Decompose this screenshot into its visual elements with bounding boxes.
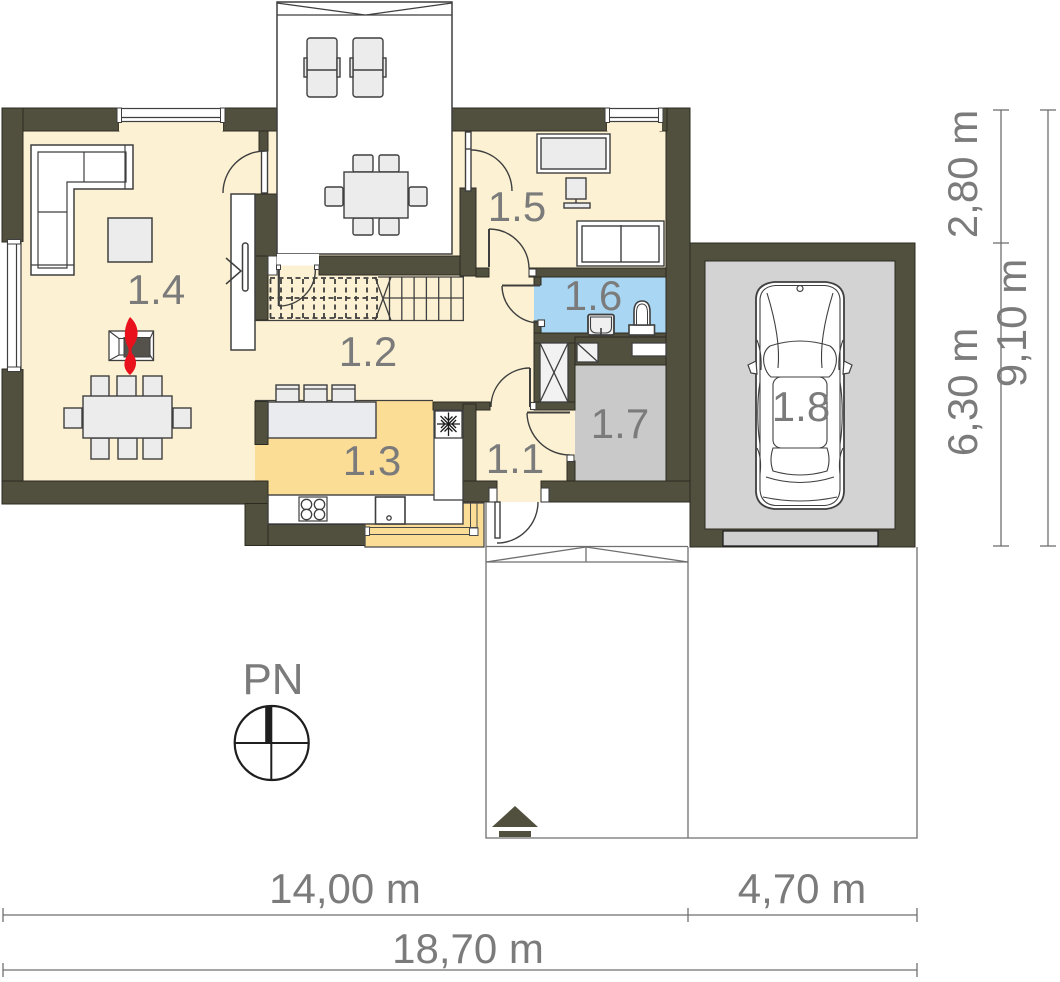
svg-text:1.6: 1.6 xyxy=(564,272,622,319)
svg-text:6,30 m: 6,30 m xyxy=(939,328,986,456)
svg-text:2,80 m: 2,80 m xyxy=(939,110,986,238)
svg-text:1.7: 1.7 xyxy=(591,400,649,447)
svg-text:1.3: 1.3 xyxy=(343,437,401,484)
svg-text:1.8: 1.8 xyxy=(772,383,830,430)
svg-text:14,00 m: 14,00 m xyxy=(269,865,421,912)
svg-text:18,70 m: 18,70 m xyxy=(392,925,544,972)
svg-text:1.2: 1.2 xyxy=(339,328,397,375)
svg-text:1.1: 1.1 xyxy=(486,435,544,482)
svg-text:4,70 m: 4,70 m xyxy=(738,865,866,912)
svg-text:1.5: 1.5 xyxy=(488,183,546,230)
svg-text:9,10 m: 9,10 m xyxy=(988,259,1035,387)
svg-text:PN: PN xyxy=(242,655,303,704)
svg-text:1.4: 1.4 xyxy=(127,266,185,313)
